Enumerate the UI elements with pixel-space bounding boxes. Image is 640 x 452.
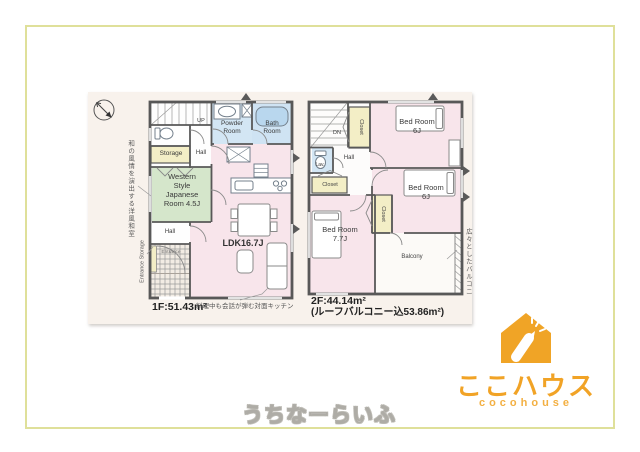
bedroom-c-label: Bed Room 7.7J [322, 226, 358, 244]
balcony-room [375, 233, 462, 294]
cupboard-icon [254, 164, 268, 177]
cocohouse-logo-icon [501, 313, 551, 363]
hall-lower-label: Hall [161, 229, 179, 236]
floor1-kitchen-caption: 料理中も会話が弾む対面キッチン [196, 303, 306, 311]
floor2-area-note: (ルーフバルコニー込53.86m²) [311, 307, 461, 319]
lavatory-label: Lav. [310, 163, 330, 169]
compass-icon [94, 100, 114, 120]
refrigerator-icon [227, 147, 250, 162]
closet-mid-label: Closet [378, 195, 386, 233]
closet-left-label: Closet [313, 182, 347, 188]
bath-room-label: Bath Room [257, 120, 287, 135]
balcony-label: Balcony [394, 254, 430, 261]
floor2-plan [307, 93, 470, 296]
storage-label: Storage [153, 150, 189, 158]
floor1-entrance-storage-note: Entrance Storage [140, 230, 149, 294]
vanity-sink-icon [214, 104, 240, 119]
washing-machine-icon [242, 104, 252, 117]
vent-marker [428, 93, 438, 100]
dining-table-icon [231, 204, 277, 236]
hall2-label: Hall [340, 155, 358, 162]
floor1-japanese-room-note: 和の風情を演出する洋風和室 [126, 130, 134, 248]
cocohouse-logo-en: cocohouse [450, 397, 602, 409]
vent-marker [241, 93, 251, 100]
closet-top-label: Closet [356, 108, 364, 146]
floor2-area-label: 2F:44.14m² [311, 295, 401, 307]
entrance-label: Entrance [154, 250, 188, 256]
powder-room-label: Powder Room [214, 120, 250, 135]
toilet-icon [155, 128, 173, 139]
japanese-room-label: Western Style Japanese Room 4.5J [160, 173, 204, 208]
vent-marker [463, 192, 470, 202]
vent-marker [293, 224, 300, 234]
bedroom-b-label: Bed Room 6J [408, 184, 444, 202]
floorplan-flyer: UP Powder Room Bath Room Storage Hall We… [0, 0, 640, 452]
ldk-label: LDK16.7J [218, 238, 268, 249]
vent-marker [463, 166, 470, 176]
stairs-down-label: DN [329, 130, 345, 136]
stairs-up-label: UP [193, 118, 209, 124]
bedroom-a-label: Bed Room 6J [399, 118, 435, 136]
kitchen-counter-icon [231, 178, 292, 193]
floor2-balcony-note: 広々としたバルコニー [456, 226, 471, 298]
vent-marker [293, 153, 300, 163]
uchina-life-watermark: うちなーらいふ [234, 399, 404, 429]
hall-upper-label: Hall [192, 150, 210, 157]
